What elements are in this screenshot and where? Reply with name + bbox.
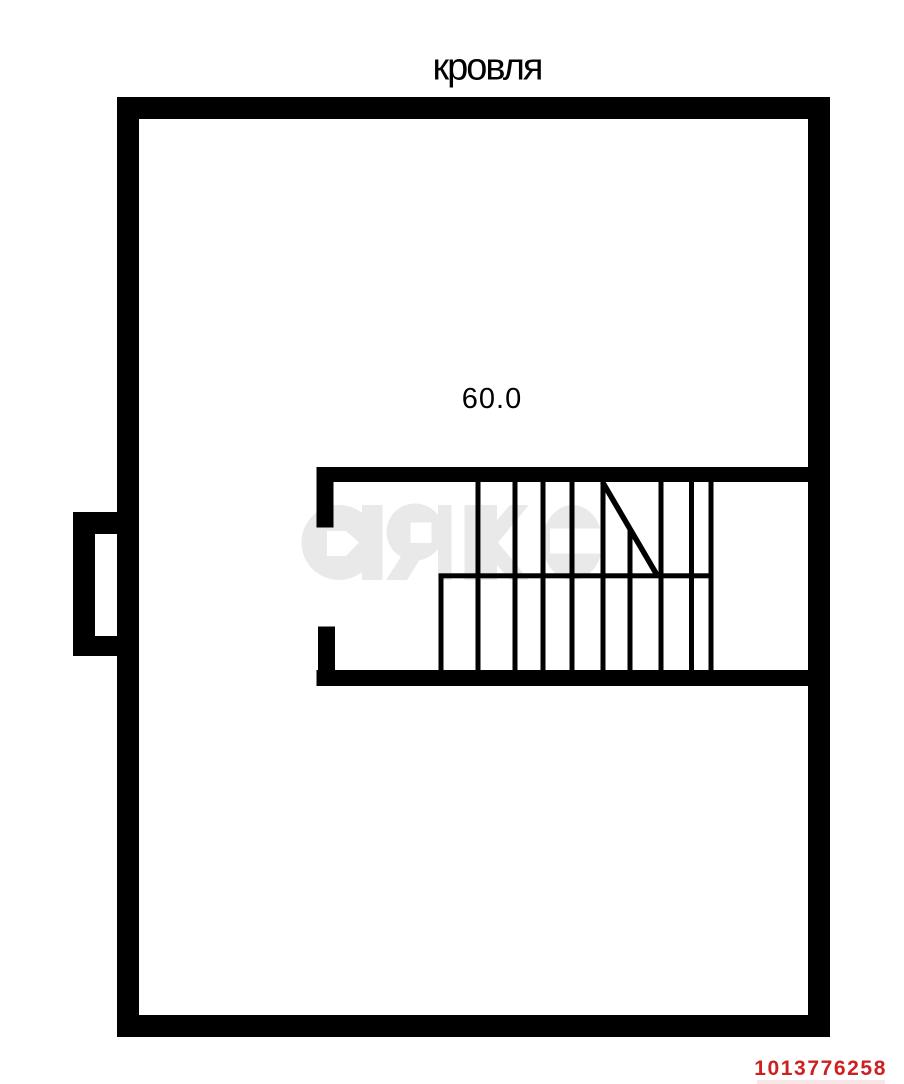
svg-text:кровля: кровля	[433, 47, 542, 89]
svg-text:1013776258: 1013776258	[754, 1057, 887, 1080]
svg-text:60.0: 60.0	[462, 383, 522, 415]
